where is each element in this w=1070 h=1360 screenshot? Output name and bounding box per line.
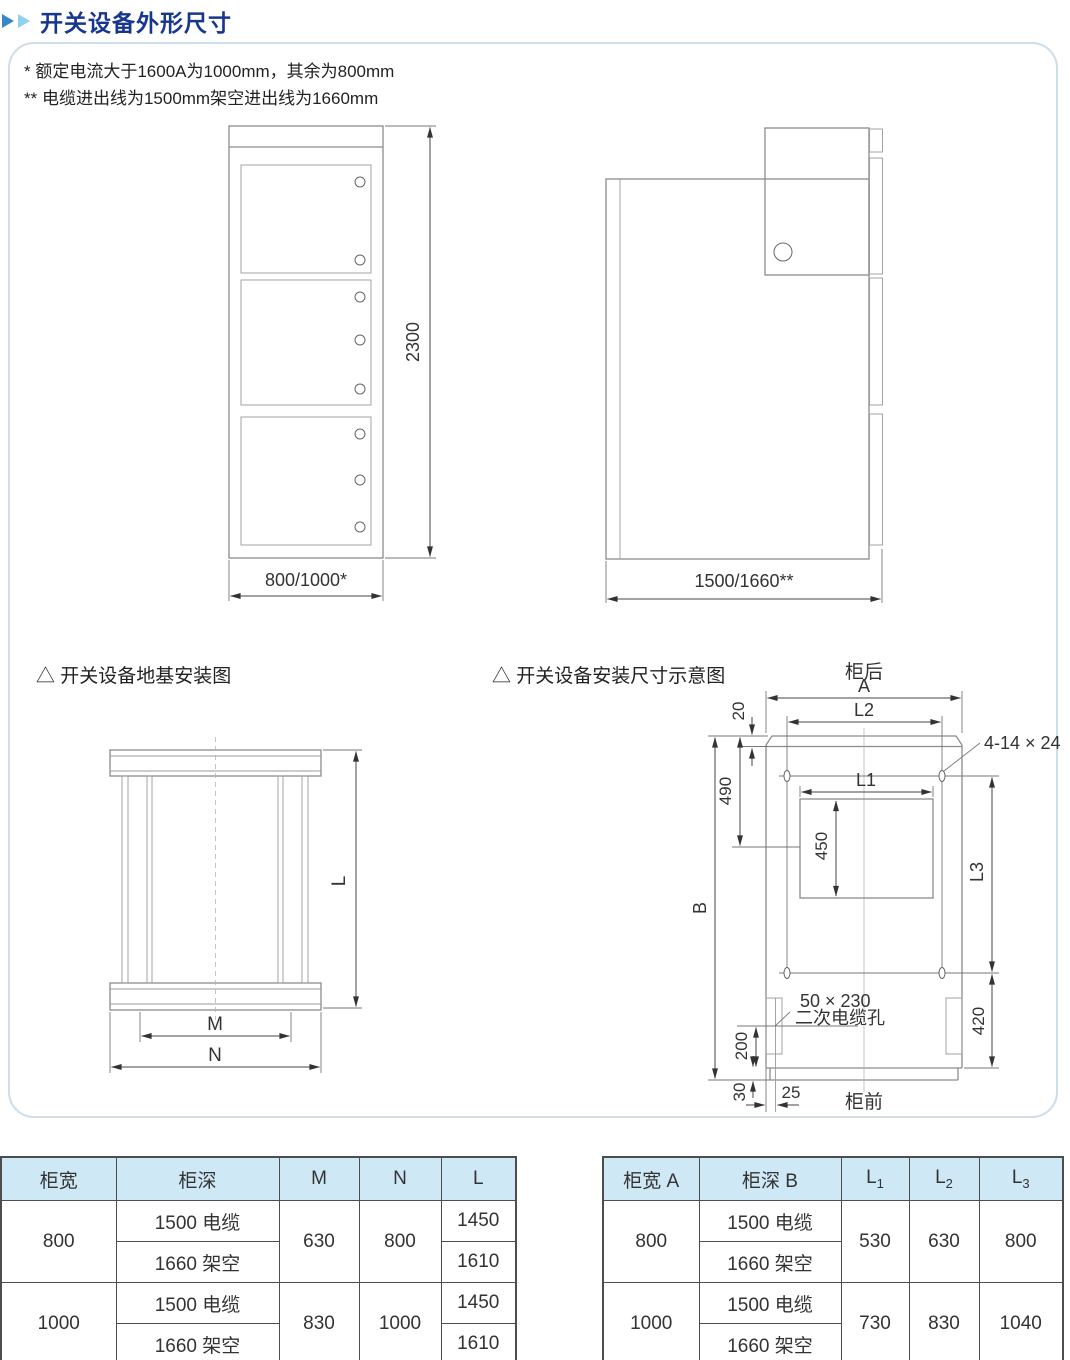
side-view-dimensions: 1500/1660** xyxy=(606,549,882,603)
foundation-drawing: L M N xyxy=(85,725,375,1085)
cell-width: 800 xyxy=(1,1201,116,1283)
col-header-m: M xyxy=(279,1157,359,1201)
front-label: 柜前 xyxy=(845,1091,883,1113)
cell-m: 830 xyxy=(279,1283,359,1360)
dim-l3-label: L3 xyxy=(967,862,987,882)
cell-l3: 800 xyxy=(979,1201,1063,1283)
col-header-width: 柜宽 xyxy=(1,1157,116,1201)
col-header-width-a: 柜宽 A xyxy=(603,1157,699,1201)
cable-hole-label: 二次电缆孔 xyxy=(795,1008,885,1028)
table-row: 800 1500 电缆 530 630 800 xyxy=(603,1201,1063,1242)
cell-l: 1450 xyxy=(441,1201,516,1242)
front-height-dim-label: 2300 xyxy=(403,322,423,362)
front-width-dim-label: 800/1000* xyxy=(265,570,347,590)
col-header-depth-b: 柜深 B xyxy=(699,1157,841,1201)
foundation-outline xyxy=(110,737,321,1020)
cell-l: 1450 xyxy=(441,1283,516,1324)
page-title: 开关设备外形尺寸 xyxy=(40,4,232,38)
front-view-drawing: 2300 800/1000* xyxy=(195,100,485,610)
cell-l3: 1040 xyxy=(979,1283,1063,1360)
dim-420-label: 420 xyxy=(969,1007,988,1035)
cabinet-front-outline xyxy=(229,126,383,558)
cabinet-side-outline xyxy=(606,128,883,559)
cell-depth-b: 1660 架空 xyxy=(699,1324,841,1360)
table-row: 1000 1500 电缆 830 1000 1450 xyxy=(1,1283,516,1324)
col-header-l1: L1 xyxy=(841,1157,909,1201)
table-header-row: 柜宽 A 柜深 B L1 L2 L3 xyxy=(603,1157,1063,1201)
note-rated-current: * 额定电流大于1600A为1000mm，其余为800mm xyxy=(24,57,394,82)
table-header-row: 柜宽 柜深 M N L xyxy=(1,1157,516,1201)
foundation-dim-m: M xyxy=(207,1014,223,1035)
table-row: 800 1500 电缆 630 800 1450 xyxy=(1,1201,516,1242)
cell-l2: 830 xyxy=(909,1283,979,1360)
cell-width-a: 800 xyxy=(603,1201,699,1283)
cell-depth: 1660 架空 xyxy=(116,1242,279,1283)
dimension-table-mnl: 柜宽 柜深 M N L 800 1500 电缆 630 800 1450 166… xyxy=(0,1156,517,1360)
table-row: 1000 1500 电缆 730 830 1040 xyxy=(603,1283,1063,1324)
col-header-depth: 柜深 xyxy=(116,1157,279,1201)
dim-200-label: 200 xyxy=(732,1032,751,1060)
foundation-dim-l: L xyxy=(329,876,350,887)
dim-450-label: 450 xyxy=(812,832,831,860)
cell-width-a: 1000 xyxy=(603,1283,699,1360)
col-header-n: N xyxy=(359,1157,441,1201)
dimension-table-l123: 柜宽 A 柜深 B L1 L2 L3 800 1500 电缆 530 630 8… xyxy=(602,1156,1064,1360)
dim-490-label: 490 xyxy=(716,777,735,805)
col-header-l3: L3 xyxy=(979,1157,1063,1201)
cell-l: 1610 xyxy=(441,1242,516,1283)
cell-width: 1000 xyxy=(1,1283,116,1360)
section-header: 开关设备外形尺寸 xyxy=(2,4,232,38)
cell-m: 630 xyxy=(279,1201,359,1283)
installation-dimensions: 柜后 A L2 20 490 B xyxy=(690,661,1061,1113)
col-header-l2: L2 xyxy=(909,1157,979,1201)
col-header-l: L xyxy=(441,1157,516,1201)
cell-n: 1000 xyxy=(359,1283,441,1360)
dim-l2-label: L2 xyxy=(854,700,874,720)
hole-spec-label: 4-14 × 24 xyxy=(984,733,1061,753)
cell-n: 800 xyxy=(359,1201,441,1283)
cell-depth: 1660 架空 xyxy=(116,1324,279,1360)
cell-depth-b: 1660 架空 xyxy=(699,1242,841,1283)
cell-l2: 630 xyxy=(909,1201,979,1283)
foundation-dimensions: L M N xyxy=(110,750,362,1073)
page: 开关设备外形尺寸 * 额定电流大于1600A为1000mm，其余为800mm *… xyxy=(0,0,1070,1360)
chevron-right-icon xyxy=(2,14,14,28)
caption-foundation: △ 开关设备地基安装图 xyxy=(36,661,231,688)
side-depth-dim-label: 1500/1660** xyxy=(694,571,793,591)
installation-drawing: 柜后 A L2 20 490 B xyxy=(670,650,1070,1116)
dim-a-label: A xyxy=(858,676,870,696)
front-view-dimensions: 2300 800/1000* xyxy=(229,126,436,601)
foundation-dim-n: N xyxy=(208,1045,222,1066)
cell-l: 1610 xyxy=(441,1324,516,1360)
dim-20-label: 20 xyxy=(729,702,748,721)
cell-depth-b: 1500 电缆 xyxy=(699,1201,841,1242)
cell-depth-b: 1500 电缆 xyxy=(699,1283,841,1324)
side-view-drawing: 1500/1660** xyxy=(575,100,895,610)
cell-l1: 730 xyxy=(841,1283,909,1360)
cell-depth: 1500 电缆 xyxy=(116,1283,279,1324)
dim-l1-label: L1 xyxy=(856,770,876,790)
dim-30-label: 30 xyxy=(730,1083,749,1102)
dim-b-label: B xyxy=(690,902,710,914)
chevron-right-icon xyxy=(18,14,30,28)
cell-depth: 1500 电缆 xyxy=(116,1201,279,1242)
dim-25-label: 25 xyxy=(782,1083,801,1102)
cell-l1: 530 xyxy=(841,1201,909,1283)
